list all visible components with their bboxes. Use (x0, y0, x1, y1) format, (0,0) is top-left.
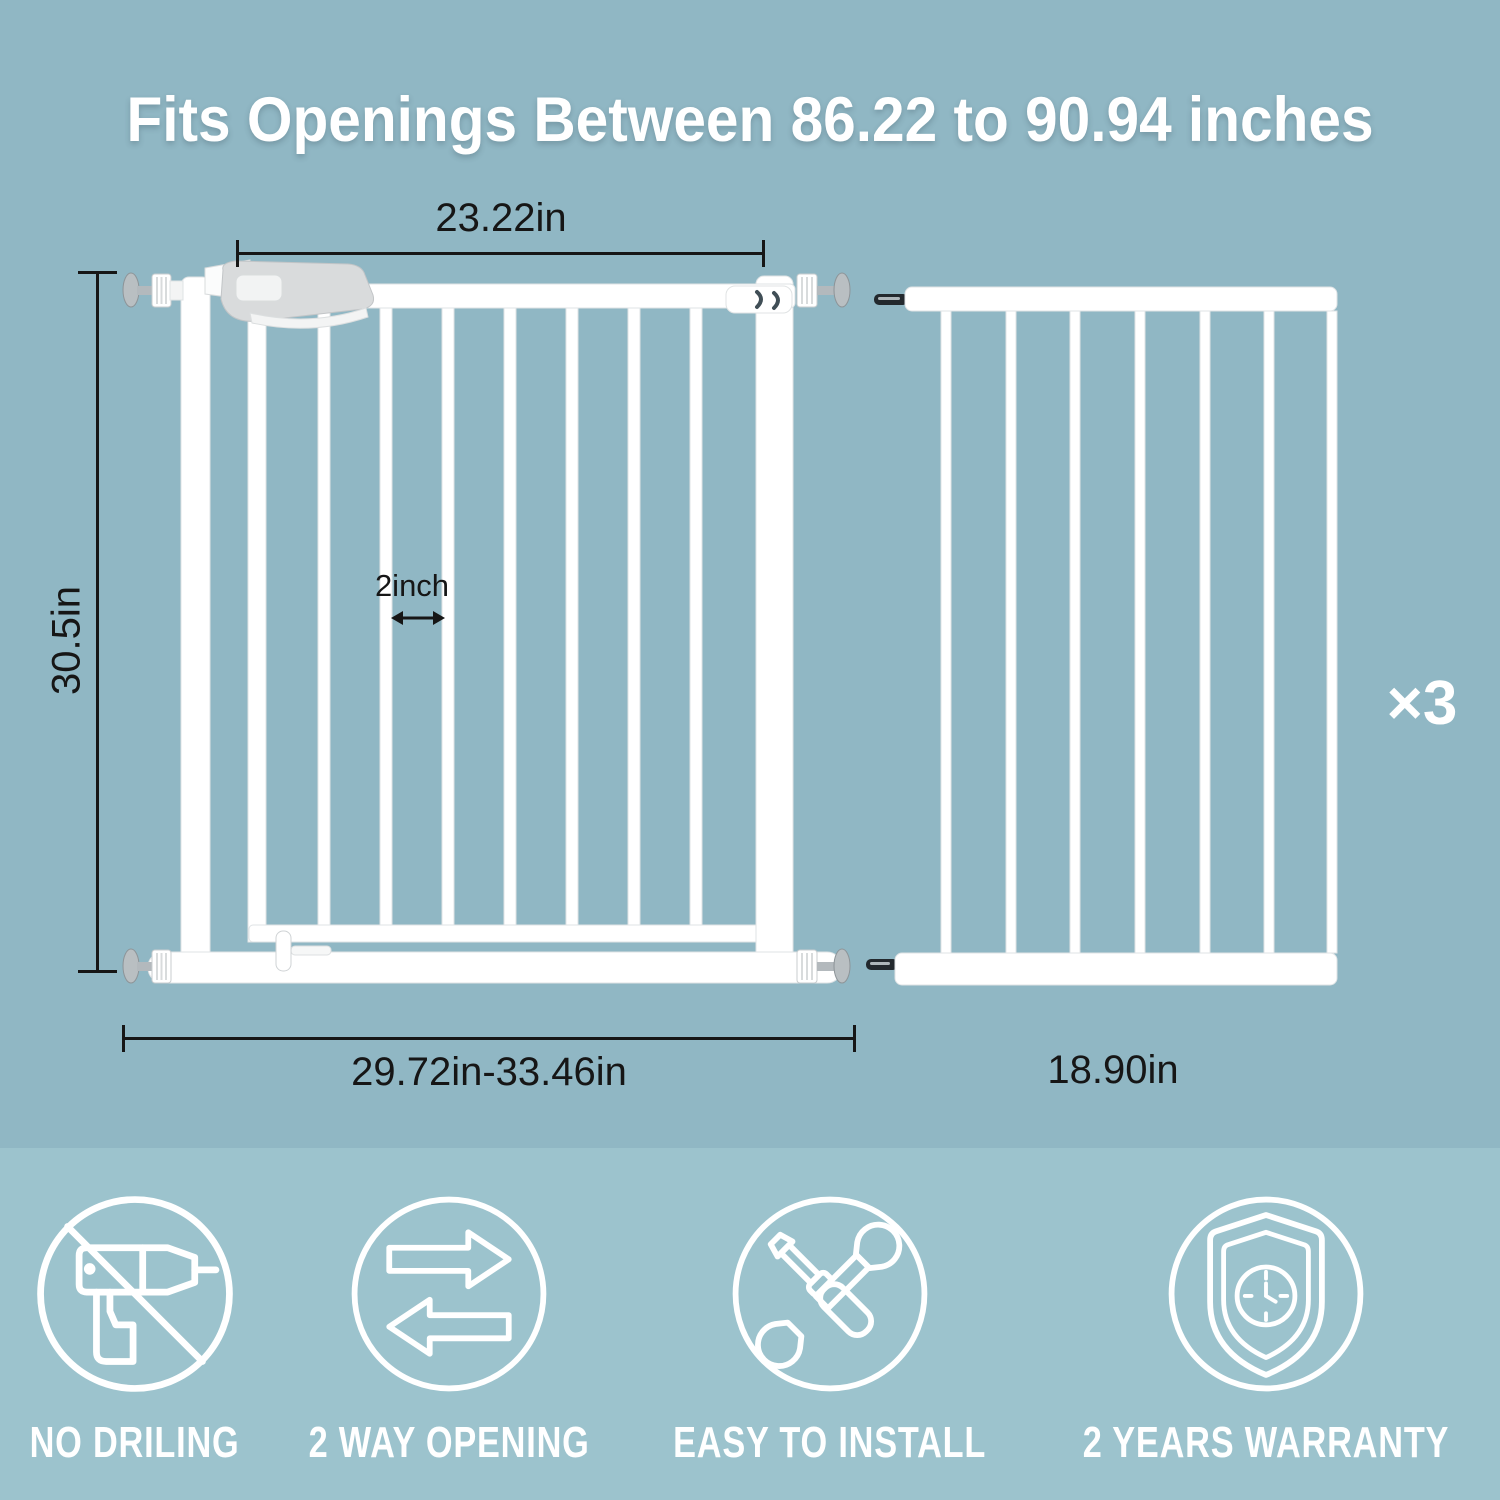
gate-height-line (96, 273, 99, 973)
pressure-knob-bottom-left (123, 949, 171, 983)
bar-gap-label: 2inch (352, 568, 472, 604)
feature-label: NO DRILING (30, 1418, 240, 1468)
bar-gap-arrow (390, 606, 446, 630)
door-width-tick-right (762, 240, 765, 267)
warranty-icon (1160, 1188, 1372, 1400)
easy-to-install-icon (724, 1188, 936, 1400)
door-width-tick-left (236, 240, 239, 267)
feature-label: 2 YEARS WARRANTY (1082, 1418, 1449, 1468)
extension-bars (941, 311, 1337, 953)
total-width-tick-right (853, 1025, 856, 1052)
extension-bottom-bar (895, 953, 1337, 985)
feature-no-drilling: NO DRILING (0, 1148, 269, 1500)
gate-diagram (0, 180, 880, 1100)
pressure-knob-top-left (123, 273, 183, 307)
extension-top-peg (874, 294, 908, 305)
gate-door-bars (248, 292, 702, 942)
two-way-opening-icon (343, 1188, 555, 1400)
no-drilling-icon (29, 1188, 241, 1400)
gate-height-tick-top (78, 271, 117, 274)
extension-top-bar (905, 287, 1337, 311)
features-section: NO DRILING 2 WAY OPENING (0, 1148, 1500, 1500)
feature-label: EASY TO INSTALL (673, 1418, 986, 1468)
gate-left-post (181, 277, 210, 967)
product-infographic: Fits Openings Between 86.22 to 90.94 inc… (0, 0, 1500, 1500)
page-title: Fits Openings Between 86.22 to 90.94 inc… (53, 84, 1448, 156)
feature-label: 2 WAY OPENING (309, 1418, 590, 1468)
gate-height-label: 30.5in (45, 555, 90, 727)
feature-two-way-opening: 2 WAY OPENING (269, 1148, 629, 1500)
total-width-label: 29.72in-33.46in (123, 1050, 855, 1095)
gate-right-post (756, 276, 793, 970)
feature-easy-install: EASY TO INSTALL (629, 1148, 1030, 1500)
total-width-line (123, 1037, 855, 1040)
gate-bottom-bar (148, 952, 842, 983)
diagram-section: Fits Openings Between 86.22 to 90.94 inc… (0, 0, 1500, 1148)
gate-latch-handle (221, 261, 374, 328)
extension-panel-diagram (850, 180, 1370, 1100)
door-width-line (237, 252, 765, 255)
gate-door-bottom-rail (249, 925, 761, 942)
door-width-label: 23.22in (237, 196, 765, 241)
extension-width-label: 18.90in (963, 1048, 1263, 1093)
gate-height-tick-bottom (78, 970, 117, 973)
extension-bottom-peg (866, 959, 898, 970)
pressure-knob-top-right (797, 273, 850, 307)
feature-warranty: 2 YEARS WARRANTY (1031, 1148, 1500, 1500)
total-width-tick-left (122, 1025, 125, 1052)
gate-hinge (726, 286, 792, 313)
extension-quantity-label: ×3 (1352, 668, 1492, 739)
